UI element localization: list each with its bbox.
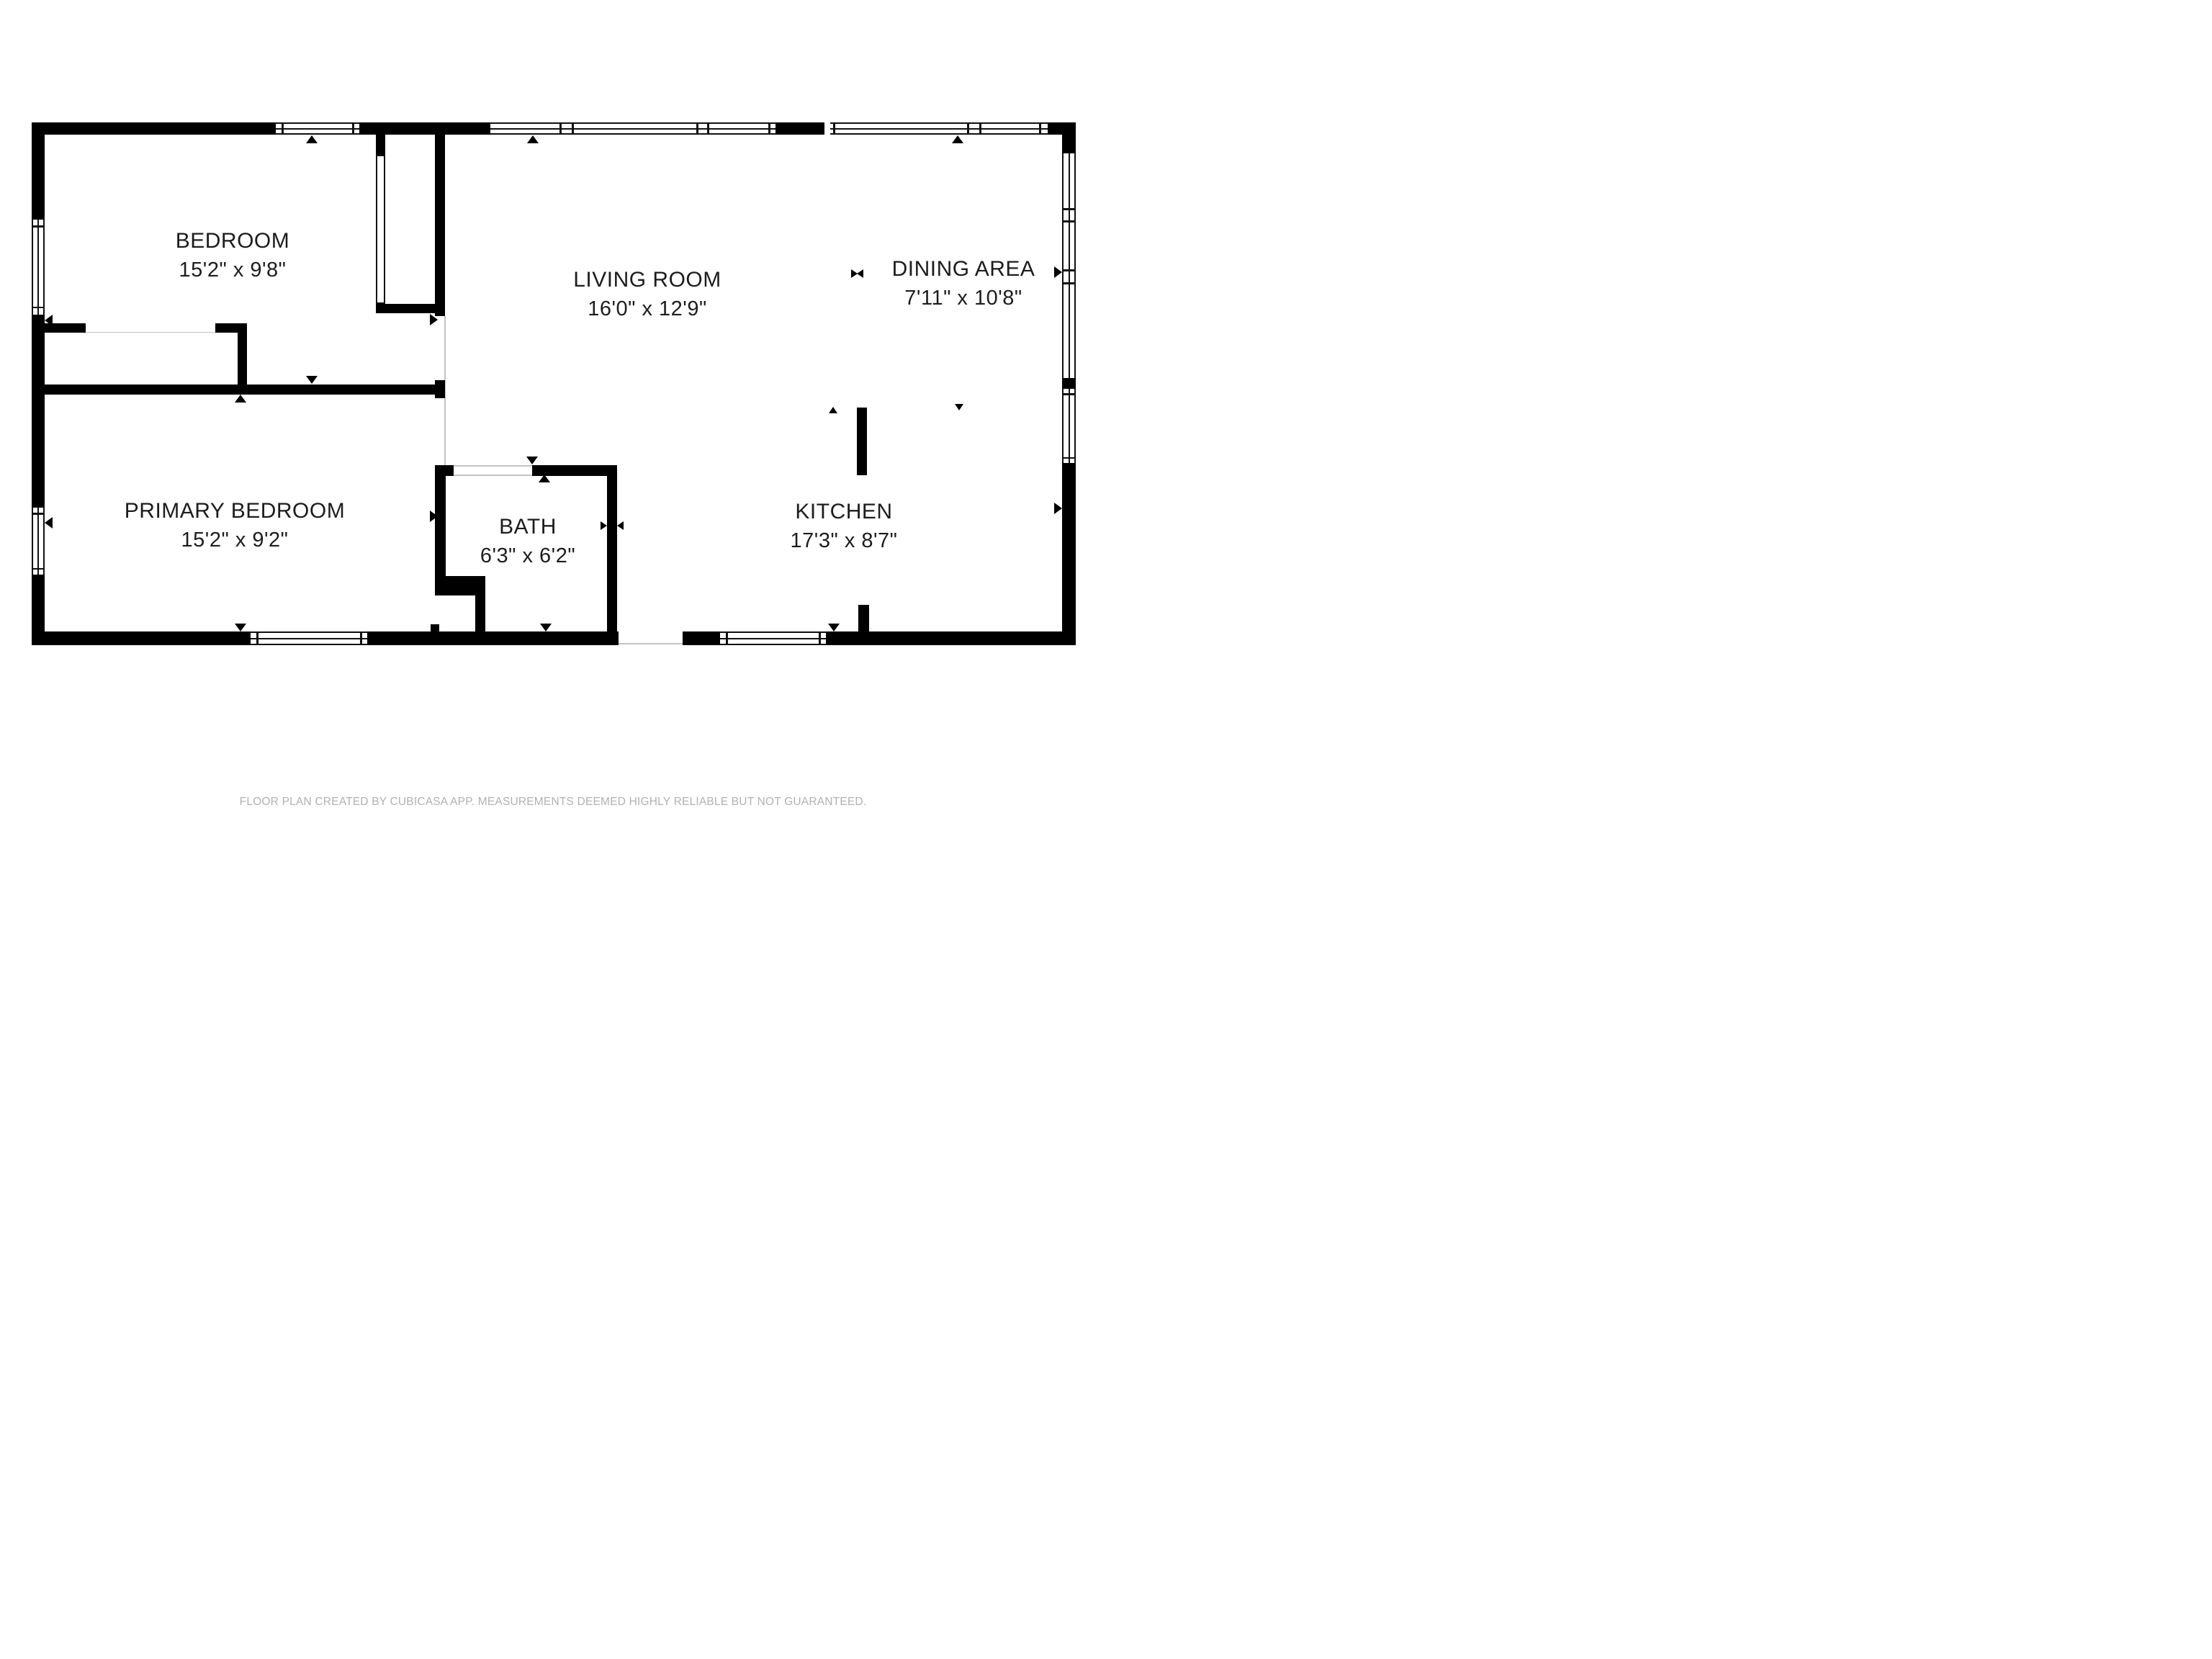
wall-bottom-segment — [683, 631, 720, 645]
window-left-upper — [32, 220, 45, 315]
door-swing-icon — [45, 517, 53, 529]
room-name: BATH — [480, 515, 575, 539]
room-dimensions: 17'3" x 8'7" — [791, 529, 898, 553]
room-name: PRIMARY BEDROOM — [125, 499, 345, 523]
wall-right-segment — [1062, 135, 1076, 153]
wall-bottom-segment — [367, 631, 619, 645]
window-marker-icon — [540, 624, 552, 631]
closet-wall-bottom — [376, 304, 445, 313]
closet-opening-line — [86, 332, 215, 333]
wall-bedroom-primary-divider — [45, 385, 445, 395]
room-dimensions: 15'2" x 9'8" — [176, 258, 290, 282]
bath-door-opening-line — [454, 465, 532, 467]
room-dimensions: 7'11" x 10'8" — [892, 287, 1035, 310]
door-swing-icon — [306, 376, 318, 384]
bath-wall-jog-horizontal — [435, 576, 485, 595]
window-top-1 — [276, 122, 359, 135]
wall-left-segment — [32, 135, 45, 220]
closet-sliding-door — [376, 155, 385, 304]
room-name: KITCHEN — [791, 500, 898, 524]
floor-plan-page: BEDROOM 15'2" x 9'8" LIVING ROOM 16'0" x… — [0, 0, 1106, 829]
room-name: LIVING ROOM — [573, 268, 721, 292]
door-swing-icon — [430, 314, 438, 325]
room-dimensions: 15'2" x 9'2" — [125, 529, 345, 552]
wall-right-segment — [1062, 463, 1076, 645]
door-swing-icon — [526, 457, 538, 464]
wall-bottom-segment — [826, 631, 1076, 645]
window-right-upper — [1062, 153, 1076, 378]
window-bottom-2 — [720, 631, 826, 645]
closet-end-wall — [238, 333, 247, 385]
opening-arrow-icon — [829, 407, 837, 413]
room-dimensions: 6'3" x 6'2" — [480, 544, 575, 568]
door-swing-icon — [235, 395, 246, 403]
window-marker-icon — [306, 135, 318, 143]
kitchen-peninsula-wall-lower — [858, 605, 869, 631]
wall-top-segment — [32, 122, 276, 135]
hall-wall-stub — [431, 624, 439, 631]
wall-bedroom-living — [435, 135, 445, 316]
window-top-3 — [830, 122, 1048, 135]
room-label-living-room: LIVING ROOM 16'0" x 12'9" — [573, 268, 721, 321]
room-label-dining-area: DINING AREA 7'11" x 10'8" — [892, 257, 1035, 310]
room-label-bath: BATH 6'3" x 6'2" — [480, 515, 575, 568]
wall-bottom-segment — [32, 631, 251, 645]
door-swing-icon — [430, 511, 438, 522]
window-right-lower — [1062, 389, 1076, 463]
room-name: DINING AREA — [892, 257, 1035, 282]
kitchen-peninsula-wall-upper — [857, 408, 867, 475]
wall-left-segment — [32, 315, 45, 508]
door-swing-icon — [1054, 503, 1062, 514]
closet-front-wall-right — [215, 323, 247, 333]
bath-door-opening-line — [454, 475, 532, 476]
opening-arrow-icon — [955, 404, 963, 410]
door-swing-icon — [1054, 266, 1062, 278]
window-bottom-1 — [251, 631, 367, 645]
bath-wall-right — [607, 465, 617, 631]
window-marker-icon — [235, 624, 246, 631]
window-marker-icon — [952, 135, 963, 143]
opening-arrow-icon — [601, 521, 607, 530]
closet-wall-tab — [376, 135, 385, 155]
door-swing-icon — [539, 475, 550, 482]
opening-arrow-icon — [617, 521, 624, 530]
wall-right-segment — [1062, 378, 1076, 389]
room-label-kitchen: KITCHEN 17'3" x 8'7" — [791, 500, 898, 553]
room-label-bedroom: BEDROOM 15'2" x 9'8" — [176, 229, 290, 282]
door-swing-icon — [45, 315, 53, 326]
window-top-2 — [490, 122, 775, 135]
room-name: BEDROOM — [176, 229, 290, 253]
bath-wall-jog-vertical — [475, 595, 485, 631]
room-label-primary-bedroom: PRIMARY BEDROOM 15'2" x 9'2" — [125, 499, 345, 552]
wall-top-segment — [775, 122, 824, 135]
wall-top-corner — [1048, 122, 1076, 135]
wall-top-segment — [359, 122, 490, 135]
room-dimensions: 16'0" x 12'9" — [573, 297, 721, 321]
footer-disclaimer: FLOOR PLAN CREATED BY CUBICASA APP. MEAS… — [0, 796, 1106, 809]
window-marker-icon — [527, 135, 539, 143]
window-marker-icon — [828, 624, 840, 631]
double-door-icon — [857, 269, 863, 278]
open-boundary-line — [619, 643, 683, 644]
window-left-lower — [32, 508, 45, 575]
